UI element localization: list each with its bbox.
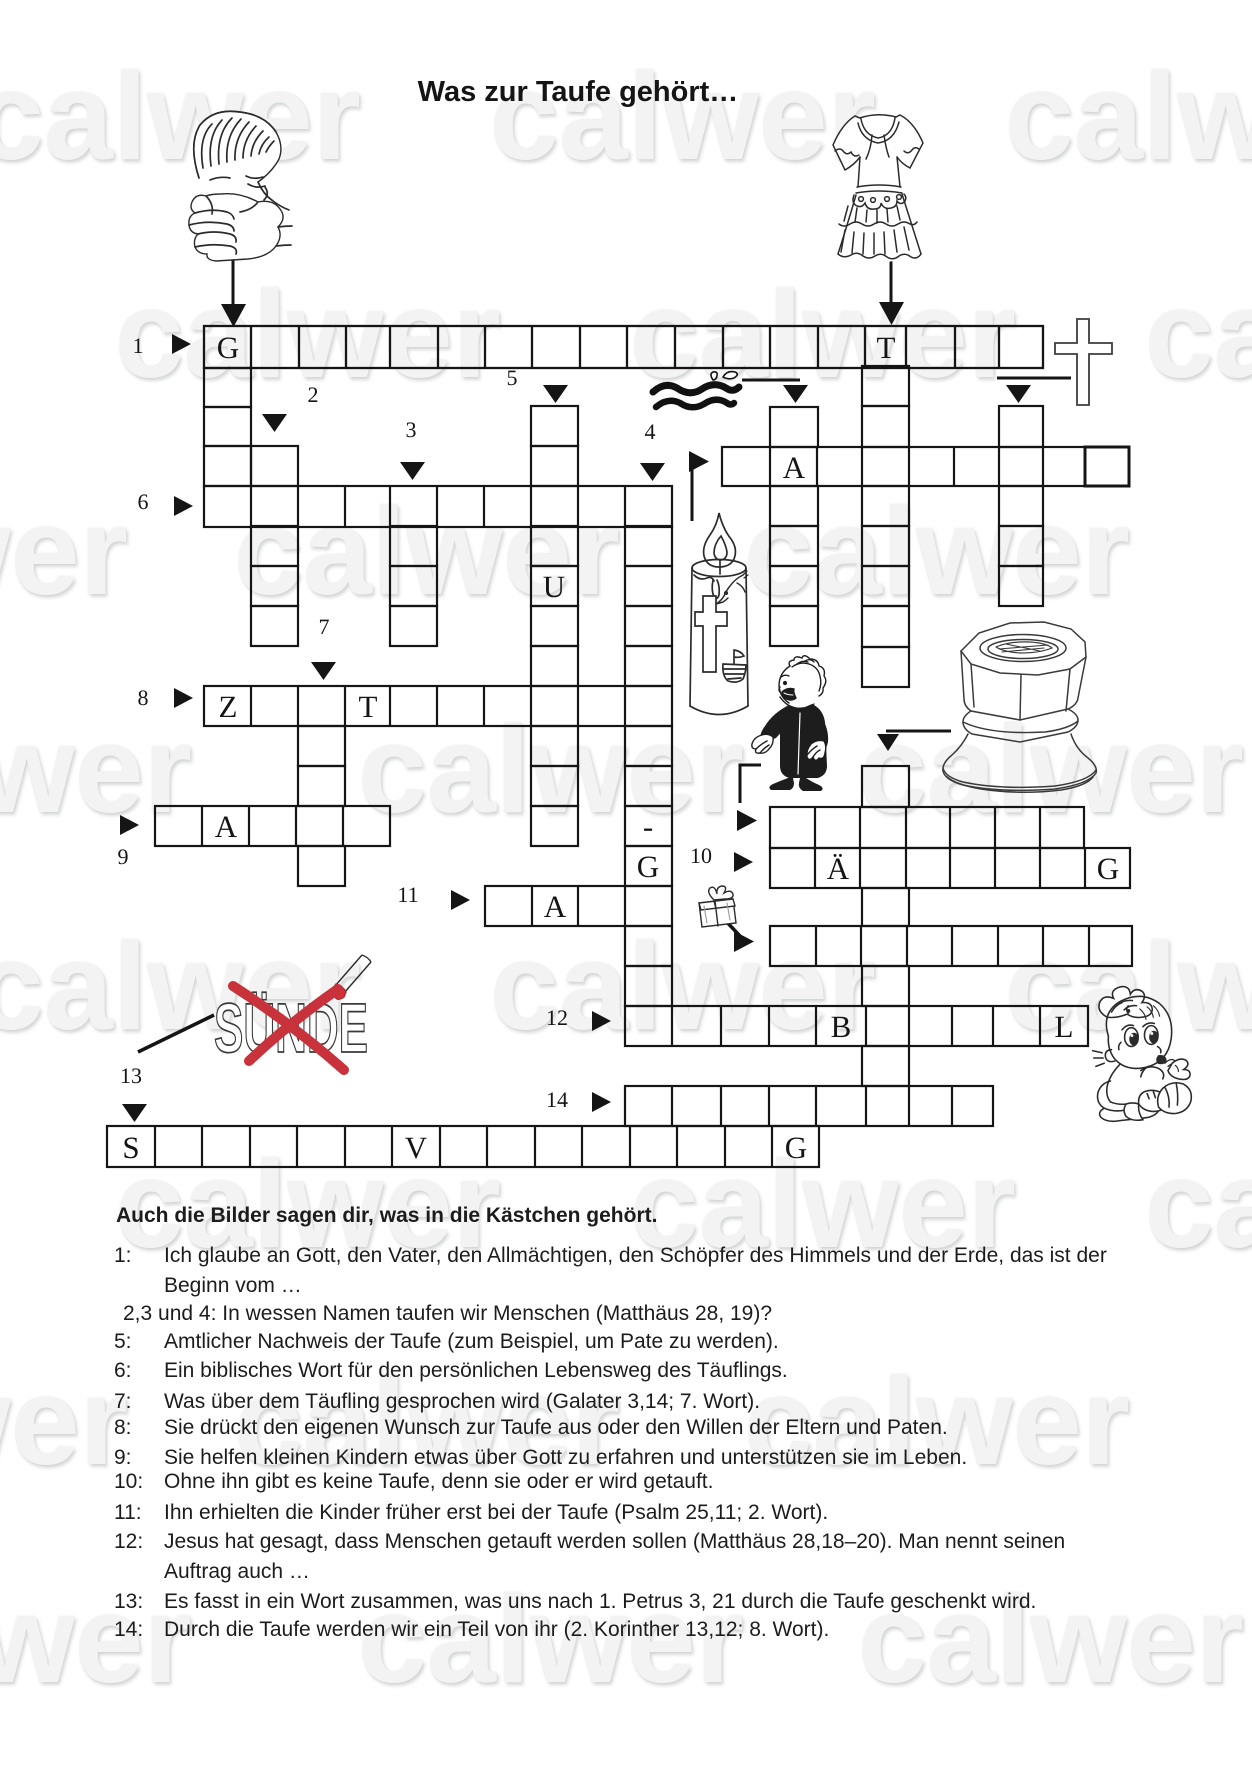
svg-text:S: S [122, 1130, 139, 1165]
svg-text:-: - [643, 809, 653, 844]
svg-text:5: 5 [507, 365, 518, 390]
svg-text:U: U [543, 569, 565, 604]
svg-text:1: 1 [133, 333, 144, 358]
svg-text:A: A [215, 809, 238, 844]
svg-text:L: L [1055, 1009, 1074, 1044]
svg-text:A: A [783, 450, 806, 485]
svg-text:2: 2 [308, 382, 319, 407]
svg-text:A: A [544, 889, 567, 924]
svg-text:9: 9 [118, 844, 129, 869]
svg-text:T: T [359, 689, 378, 724]
svg-text:G: G [1097, 851, 1119, 886]
svg-text:G: G [637, 849, 659, 884]
svg-text:Ä: Ä [827, 851, 850, 886]
svg-text:4: 4 [645, 419, 656, 444]
svg-text:V: V [405, 1130, 428, 1165]
svg-text:G: G [217, 330, 239, 365]
svg-text:3: 3 [406, 417, 417, 442]
svg-text:8: 8 [138, 685, 149, 710]
svg-text:7: 7 [319, 614, 330, 639]
svg-text:G: G [785, 1130, 807, 1165]
svg-text:11: 11 [397, 882, 418, 907]
svg-text:12: 12 [546, 1005, 568, 1030]
svg-text:6: 6 [138, 489, 149, 514]
svg-text:10: 10 [690, 843, 712, 868]
svg-text:13: 13 [120, 1063, 142, 1088]
svg-text:14: 14 [546, 1087, 568, 1112]
svg-text:Z: Z [219, 689, 238, 724]
svg-text:T: T [877, 330, 896, 365]
svg-text:B: B [831, 1009, 852, 1044]
